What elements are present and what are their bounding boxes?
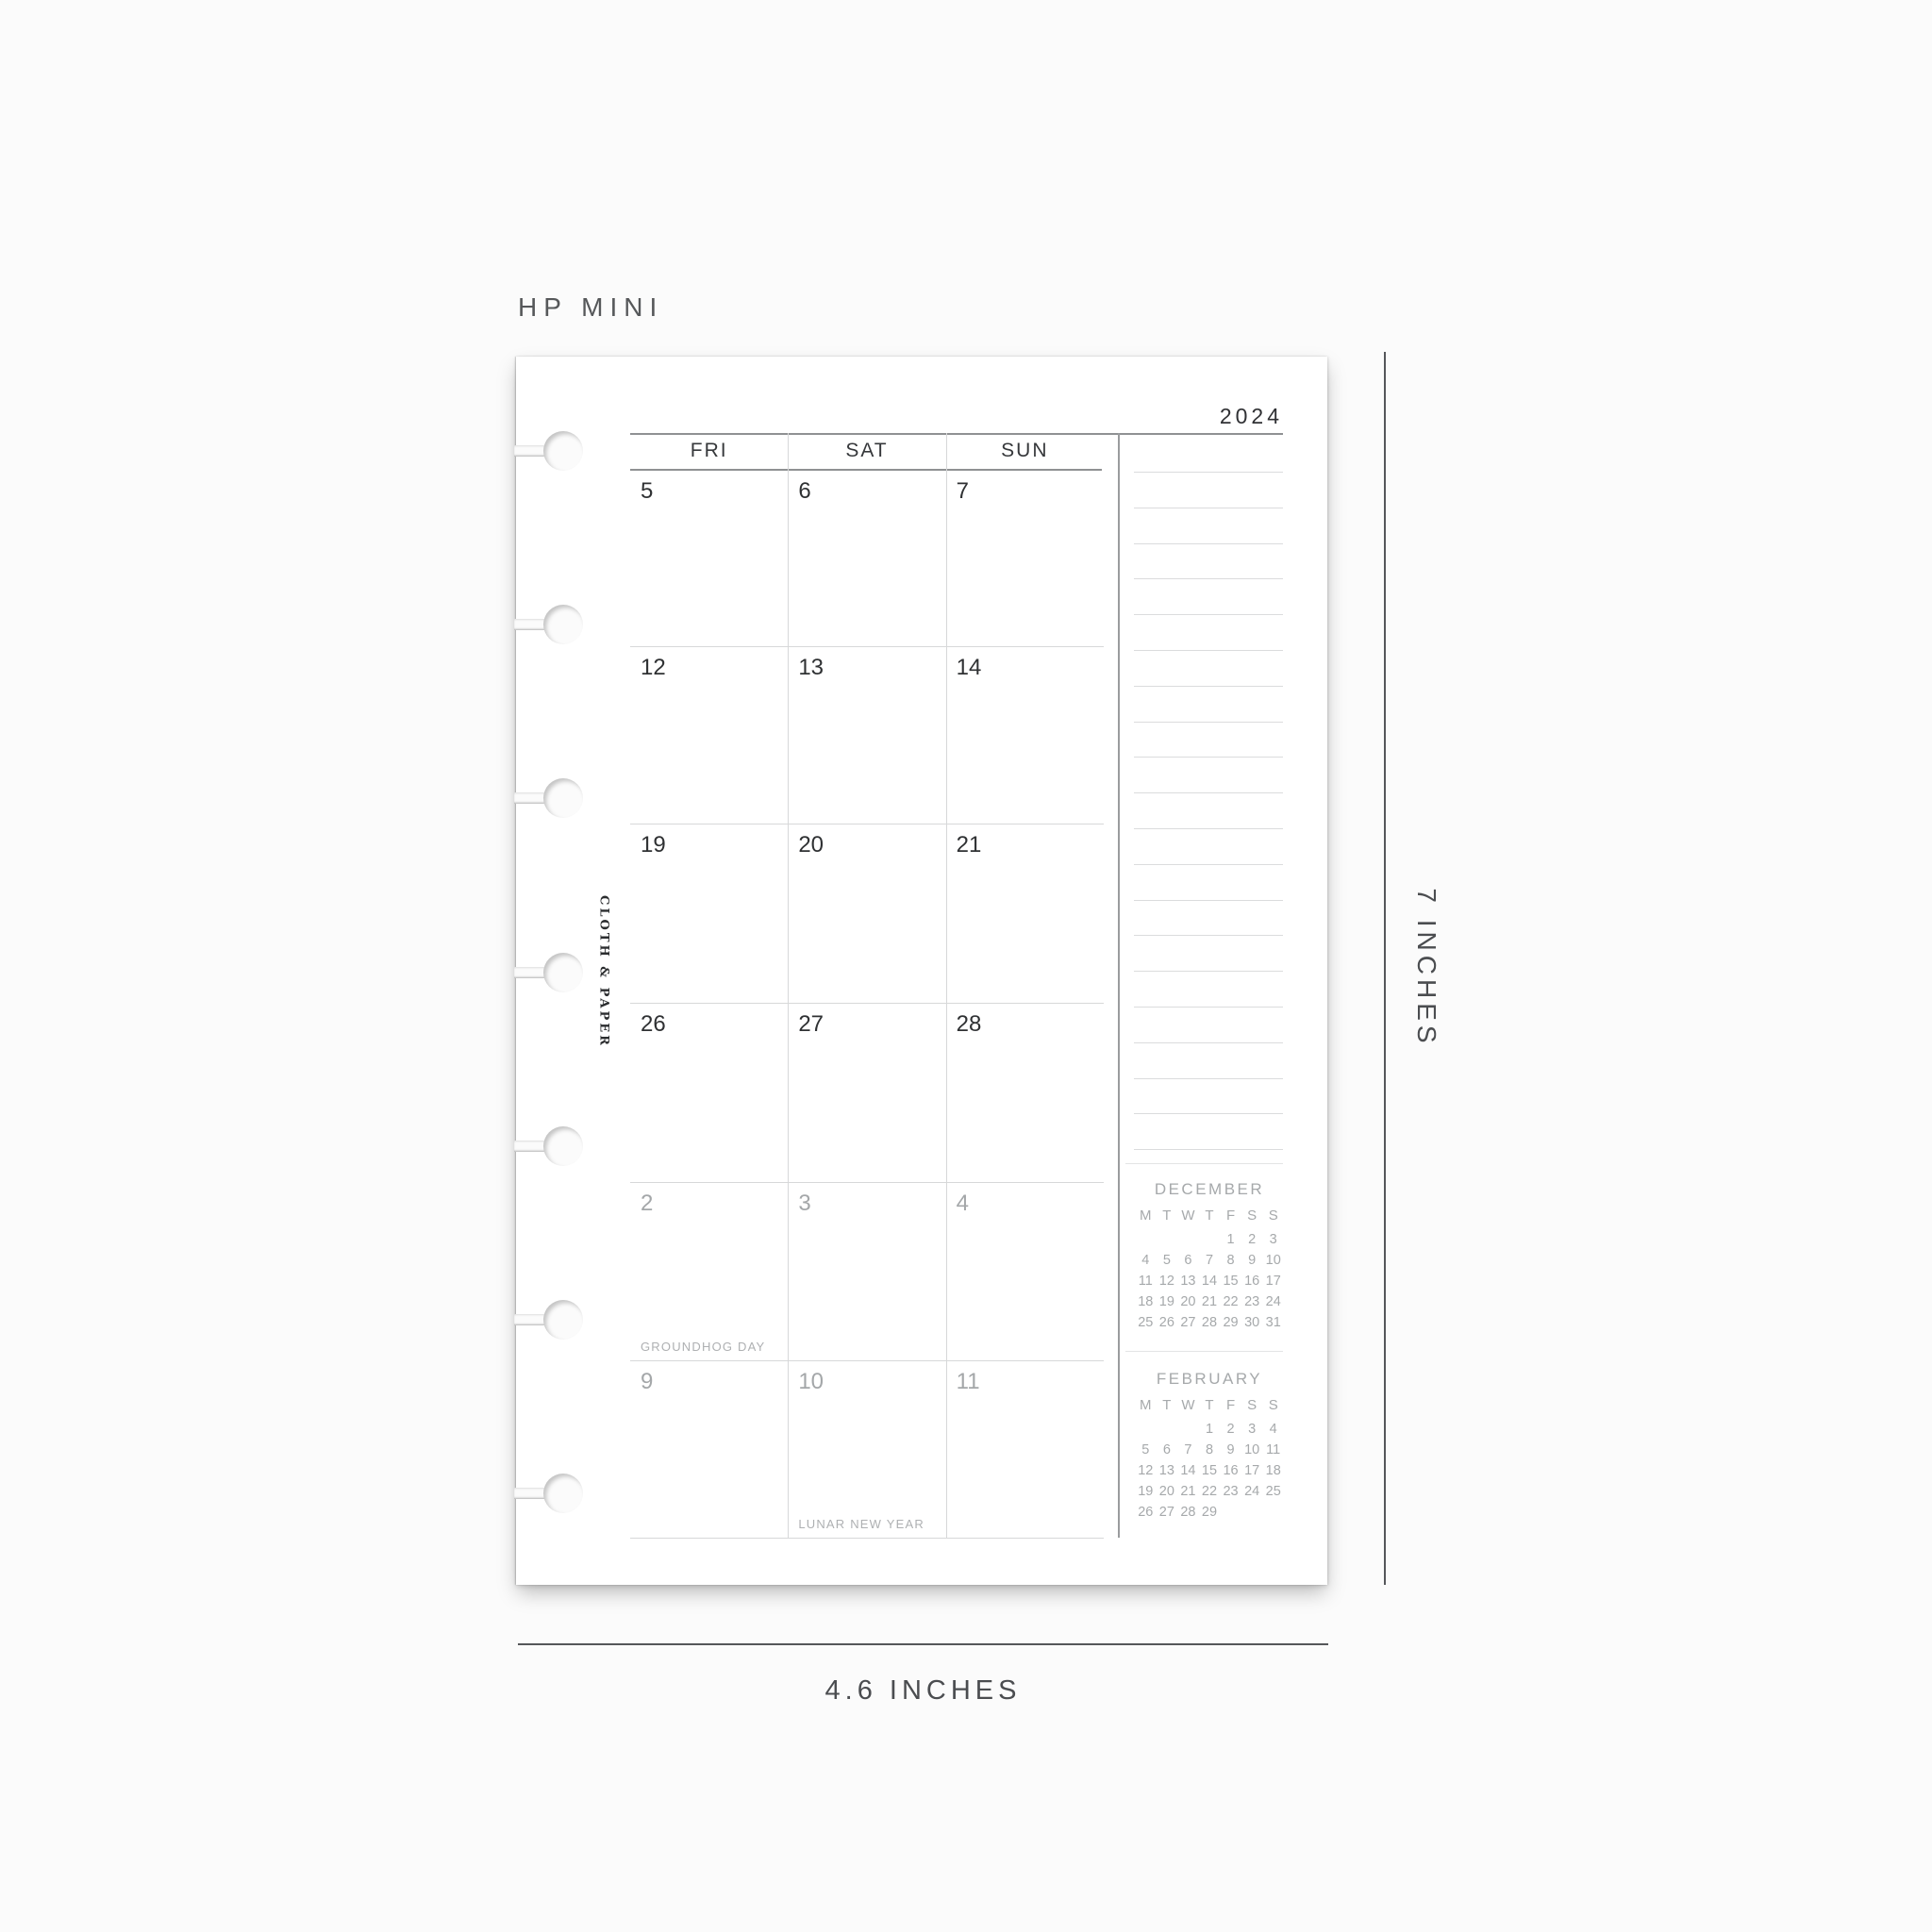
sidebar-section-line	[1125, 1351, 1283, 1352]
mini-calendar-day: 5	[1157, 1250, 1178, 1271]
mini-calendar-day: 9	[1241, 1250, 1263, 1271]
holiday-label: LUNAR NEW YEAR	[798, 1517, 924, 1531]
mini-calendar-day: 22	[1220, 1291, 1241, 1312]
width-label: 4.6 INCHES	[518, 1675, 1328, 1707]
notes-column-divider	[1118, 433, 1120, 1538]
ruled-line	[1134, 614, 1283, 615]
mini-calendar-day: 6	[1177, 1250, 1199, 1271]
mini-calendar-day: 2	[1241, 1229, 1263, 1250]
ruled-line	[1134, 828, 1283, 829]
mini-calendar-day: 11	[1135, 1271, 1157, 1291]
mini-calendar-day: 8	[1199, 1440, 1221, 1460]
mini-calendar-day: 19	[1157, 1291, 1178, 1312]
disc-notch-hole	[543, 778, 583, 818]
mini-calendar-day: 18	[1135, 1291, 1157, 1312]
mini-calendar-grid: MTWTFSS123456789101112131415161718192021…	[1135, 1394, 1284, 1523]
mini-calendar-day	[1199, 1229, 1221, 1250]
mini-calendar-day: 25	[1262, 1481, 1284, 1502]
mini-calendar: DECEMBERMTWTFSS1234567891011121314151617…	[1135, 1179, 1284, 1333]
ruled-line	[1134, 1149, 1283, 1150]
mini-calendar-day: 4	[1262, 1419, 1284, 1440]
mini-calendar-day: 18	[1262, 1460, 1284, 1481]
brand-text: CLOTH & PAPER	[597, 895, 611, 1048]
date-cell: 7	[957, 478, 969, 505]
mini-calendar-day: 31	[1262, 1312, 1284, 1333]
mini-calendar-day: 5	[1135, 1440, 1157, 1460]
disc-notch-hole	[543, 1300, 583, 1340]
date-cell: 20	[798, 832, 824, 858]
row-divider	[630, 646, 1104, 647]
mini-calendar-weekday: S	[1262, 1394, 1284, 1419]
mini-calendar-day: 28	[1199, 1312, 1221, 1333]
date-cell: 12	[641, 655, 666, 681]
date-cell: 26	[641, 1011, 666, 1038]
mini-calendar-day	[1135, 1229, 1157, 1250]
ruled-line	[1134, 722, 1283, 723]
date-cell: 4	[957, 1191, 969, 1217]
mini-calendar-weekday: W	[1177, 1205, 1199, 1229]
mini-calendar-day: 13	[1177, 1271, 1199, 1291]
mini-calendar-day: 16	[1241, 1271, 1263, 1291]
sidebar-section-line	[1125, 1163, 1283, 1164]
mini-calendar-day: 1	[1220, 1229, 1241, 1250]
column-divider	[788, 433, 789, 1538]
ruled-line	[1134, 1078, 1283, 1079]
mini-calendar-day	[1262, 1502, 1284, 1523]
mini-calendar-day: 17	[1241, 1460, 1263, 1481]
mini-calendar-day: 3	[1262, 1229, 1284, 1250]
ruled-line	[1134, 900, 1283, 901]
ruled-line	[1134, 1113, 1283, 1114]
mini-calendar-weekday: W	[1177, 1394, 1199, 1419]
ruled-line	[1134, 686, 1283, 687]
disc-notch-hole	[543, 1474, 583, 1513]
mini-calendar-day: 6	[1157, 1440, 1178, 1460]
mini-calendar-day: 12	[1157, 1271, 1178, 1291]
mini-calendar-day: 30	[1241, 1312, 1263, 1333]
mini-calendar-day: 24	[1241, 1481, 1263, 1502]
mini-calendar-day: 29	[1199, 1502, 1221, 1523]
mini-calendar-title: DECEMBER	[1135, 1179, 1284, 1205]
date-cell: 6	[798, 478, 810, 505]
mini-calendar-day: 3	[1241, 1419, 1263, 1440]
date-cell: 10	[798, 1369, 824, 1395]
top-rule	[630, 433, 1283, 435]
mini-calendar-day: 12	[1135, 1460, 1157, 1481]
mini-calendar-weekday: F	[1220, 1394, 1241, 1419]
mini-calendar-day: 23	[1241, 1291, 1263, 1312]
mini-calendar-day: 10	[1241, 1440, 1263, 1460]
width-measure-line	[518, 1643, 1328, 1645]
row-divider	[630, 824, 1104, 824]
row-divider	[630, 1182, 1104, 1183]
mini-calendar-day: 10	[1262, 1250, 1284, 1271]
mini-calendar: FEBRUARYMTWTFSS1234567891011121314151617…	[1135, 1369, 1284, 1523]
date-cell: 2	[641, 1191, 653, 1217]
mini-calendar-day: 4	[1135, 1250, 1157, 1271]
mini-calendar-day: 15	[1199, 1460, 1221, 1481]
mini-calendar-day: 7	[1199, 1250, 1221, 1271]
holiday-label: GROUNDHOG DAY	[641, 1340, 765, 1354]
row-divider	[630, 1003, 1104, 1004]
ruled-line	[1134, 650, 1283, 651]
height-label: 7 INCHES	[1411, 888, 1441, 1047]
date-cell: 11	[957, 1369, 980, 1395]
date-cell: 9	[641, 1369, 653, 1395]
date-cell: 3	[798, 1191, 810, 1217]
mini-calendar-day: 27	[1157, 1502, 1178, 1523]
ruled-line	[1134, 1007, 1283, 1008]
mini-calendar-weekday: T	[1157, 1394, 1178, 1419]
ruled-line	[1134, 971, 1283, 972]
ruled-line	[1134, 757, 1283, 758]
mini-calendar-day	[1177, 1419, 1199, 1440]
row-divider	[630, 1360, 1104, 1361]
mini-calendar-day	[1177, 1229, 1199, 1250]
mini-calendar-day	[1157, 1419, 1178, 1440]
ruled-line	[1134, 578, 1283, 579]
ruled-line	[1134, 508, 1283, 508]
ruled-line	[1134, 935, 1283, 936]
mini-calendar-day	[1241, 1502, 1263, 1523]
mini-calendar-day: 24	[1262, 1291, 1284, 1312]
mini-calendar-weekday: T	[1157, 1205, 1178, 1229]
date-cell: 28	[957, 1011, 982, 1038]
size-label: HP MINI	[518, 292, 663, 323]
column-divider	[946, 433, 947, 1538]
ruled-line	[1134, 1042, 1283, 1043]
mini-calendar-day	[1135, 1419, 1157, 1440]
date-cell: 13	[798, 655, 824, 681]
mini-calendar-weekday: F	[1220, 1205, 1241, 1229]
date-cell: 19	[641, 832, 666, 858]
mini-calendar-weekday: S	[1262, 1205, 1284, 1229]
mini-calendar-day: 25	[1135, 1312, 1157, 1333]
mini-calendar-day: 22	[1199, 1481, 1221, 1502]
date-cell: 27	[798, 1011, 824, 1038]
mini-calendar-day: 27	[1177, 1312, 1199, 1333]
mini-calendar-day: 19	[1135, 1481, 1157, 1502]
mini-calendar-day: 20	[1177, 1291, 1199, 1312]
planner-page: 2024 CLOTH & PAPER FRISATSUN 56712131419…	[516, 357, 1327, 1585]
ruled-line	[1134, 543, 1283, 544]
mini-calendar-weekday: S	[1241, 1205, 1263, 1229]
mini-calendar-day: 14	[1177, 1460, 1199, 1481]
mini-calendar-day: 16	[1220, 1460, 1241, 1481]
ruled-line	[1134, 792, 1283, 793]
mini-calendar-day: 11	[1262, 1440, 1284, 1460]
mini-calendar-day: 2	[1220, 1419, 1241, 1440]
mini-calendar-weekday: S	[1241, 1394, 1263, 1419]
disc-notch-hole	[543, 1126, 583, 1166]
date-cell: 21	[957, 832, 982, 858]
mini-calendar-day: 7	[1177, 1440, 1199, 1460]
mini-calendar-weekday: M	[1135, 1394, 1157, 1419]
mini-calendar-day: 29	[1220, 1312, 1241, 1333]
mini-calendar-weekday: T	[1199, 1205, 1221, 1229]
date-cell: 5	[641, 478, 653, 505]
height-measure-line	[1384, 352, 1386, 1585]
mini-calendar-weekday: T	[1199, 1394, 1221, 1419]
mini-calendar-day: 21	[1177, 1481, 1199, 1502]
ruled-line	[1134, 472, 1283, 473]
weekday-header: FRI	[630, 440, 788, 462]
mini-calendar-weekday: M	[1135, 1205, 1157, 1229]
mini-calendar-day: 15	[1220, 1271, 1241, 1291]
weekday-header: SUN	[946, 440, 1104, 462]
mini-calendar-title: FEBRUARY	[1135, 1369, 1284, 1394]
row-divider	[630, 1538, 1104, 1539]
mini-calendar-day: 28	[1177, 1502, 1199, 1523]
ruled-line	[1134, 864, 1283, 865]
mini-calendar-day: 9	[1220, 1440, 1241, 1460]
mini-calendar-day: 26	[1135, 1502, 1157, 1523]
mini-calendar-day: 23	[1220, 1481, 1241, 1502]
mini-calendar-day: 1	[1199, 1419, 1221, 1440]
mini-calendar-grid: MTWTFSS123456789101112131415161718192021…	[1135, 1205, 1284, 1333]
mini-calendar-day: 13	[1157, 1460, 1178, 1481]
mini-calendar-day: 20	[1157, 1481, 1178, 1502]
mini-calendar-day: 8	[1220, 1250, 1241, 1271]
disc-notch-hole	[543, 431, 583, 471]
mini-calendar-day: 14	[1199, 1271, 1221, 1291]
weekday-header: SAT	[788, 440, 945, 462]
date-cell: 14	[957, 655, 982, 681]
disc-notch-hole	[543, 953, 583, 992]
weekday-header-underline	[630, 469, 1102, 471]
mini-calendar-day: 26	[1157, 1312, 1178, 1333]
mini-calendar-day: 17	[1262, 1271, 1284, 1291]
mini-calendar-day	[1157, 1229, 1178, 1250]
mini-calendar-day: 21	[1199, 1291, 1221, 1312]
year-label: 2024	[1220, 404, 1283, 429]
disc-notch-hole	[543, 605, 583, 644]
mini-calendar-day	[1220, 1502, 1241, 1523]
